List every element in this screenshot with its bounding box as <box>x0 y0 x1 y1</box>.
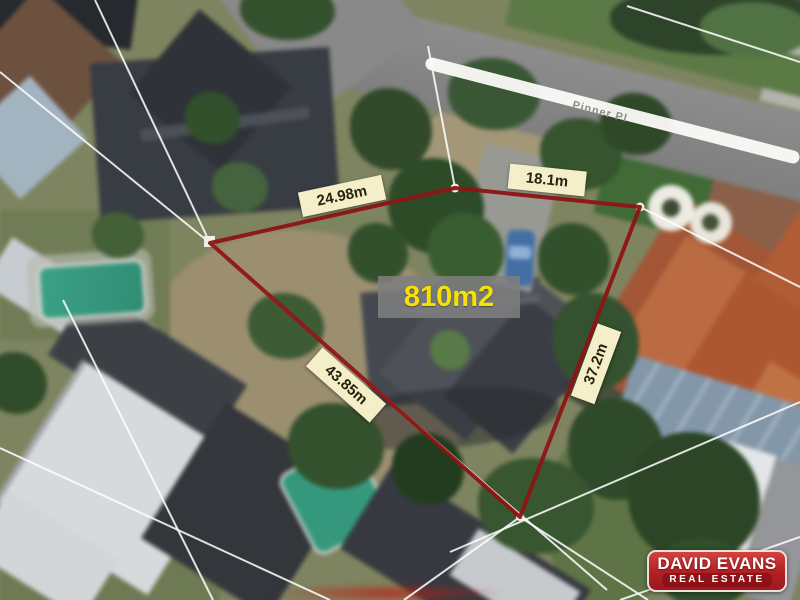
agency-watermark-badge: DAVID EVANS REAL ESTATE <box>647 550 787 592</box>
lot-boundary-polygon <box>210 188 640 517</box>
agency-tagline: REAL ESTATE <box>662 573 771 587</box>
lot-area-badge: 810m2 <box>378 276 520 318</box>
agency-name: DAVID EVANS <box>657 555 776 572</box>
lot-area-value: 810m2 <box>404 281 494 314</box>
vertex-markers <box>204 184 645 522</box>
aerial-lot-map: Pinner Pl 24.98m 18.1m 43.85m 37.2m 810m… <box>0 0 800 600</box>
